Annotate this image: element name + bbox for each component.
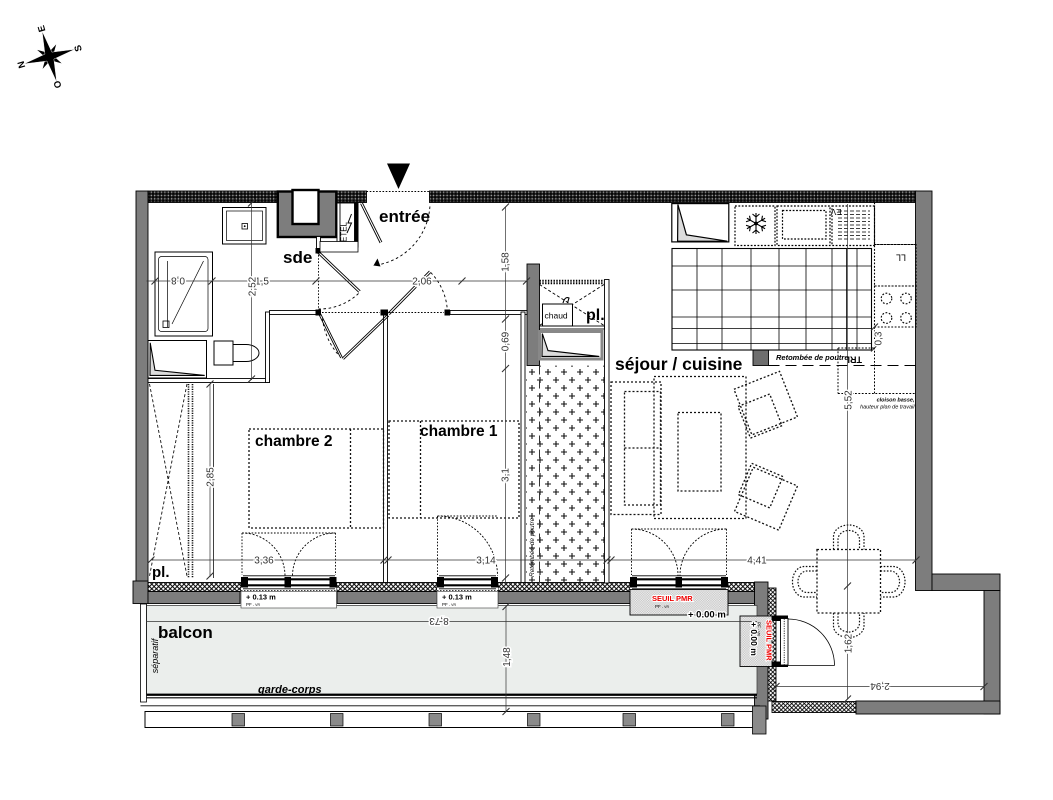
- svg-text:balcon: balcon: [158, 623, 213, 642]
- svg-text:ETEL: ETEL: [340, 221, 349, 242]
- svg-text:PF - VR: PF - VR: [246, 602, 260, 607]
- svg-text:1,62: 1,62: [844, 633, 855, 653]
- svg-text:Retombée de poutre: Retombée de poutre: [529, 517, 536, 577]
- svg-text:0,69: 0,69: [501, 331, 512, 351]
- svg-text:+ 0.13 m: + 0.13 m: [442, 593, 472, 602]
- svg-text:0,3: 0,3: [874, 331, 885, 345]
- svg-text:1,48: 1,48: [502, 647, 513, 667]
- svg-text:pl.: pl.: [152, 564, 170, 581]
- svg-text:2,94: 2,94: [870, 680, 890, 691]
- svg-text:SEUIL PMR: SEUIL PMR: [652, 594, 693, 603]
- svg-text:entrée: entrée: [379, 207, 430, 226]
- svg-text:garde-corps: garde-corps: [257, 684, 322, 696]
- svg-text:1,58: 1,58: [501, 252, 512, 272]
- svg-text:séparatif: séparatif: [150, 637, 160, 673]
- svg-text:PF - VR: PF - VR: [442, 602, 456, 607]
- svg-text:chambre 1: chambre 1: [420, 423, 498, 440]
- svg-text:3,36: 3,36: [254, 556, 274, 567]
- svg-text:séjour / cuisine: séjour / cuisine: [615, 354, 743, 374]
- svg-text:2,06: 2,06: [412, 277, 432, 288]
- svg-text:sde: sde: [283, 248, 312, 267]
- svg-text:8,73: 8,73: [429, 615, 449, 626]
- svg-text:PF - VR: PF - VR: [757, 622, 762, 636]
- svg-text:hauteur plan de travail: hauteur plan de travail: [860, 405, 915, 411]
- svg-text:+ 0.00 m: + 0.00 m: [688, 610, 726, 621]
- svg-text:chaud: chaud: [545, 311, 568, 321]
- svg-text:3,1: 3,1: [501, 468, 512, 482]
- svg-text:+ 0.13 m: + 0.13 m: [246, 593, 276, 602]
- svg-text:chambre 2: chambre 2: [255, 433, 333, 450]
- svg-text:0,8: 0,8: [171, 275, 185, 286]
- svg-text:2,85: 2,85: [206, 467, 217, 487]
- svg-text:3,14: 3,14: [476, 556, 496, 567]
- svg-text:LL: LL: [896, 253, 906, 263]
- svg-text:TRI: TRI: [848, 355, 863, 365]
- svg-text:EV: EV: [830, 207, 841, 216]
- svg-text:SEUIL PMR: SEUIL PMR: [765, 620, 774, 661]
- svg-text:5,52: 5,52: [844, 390, 855, 410]
- svg-text:Retombée de poutre: Retombée de poutre: [776, 353, 849, 362]
- svg-text:pl.: pl.: [586, 307, 605, 324]
- svg-text:4,41: 4,41: [747, 556, 767, 567]
- svg-text:PF - VR: PF - VR: [655, 604, 669, 609]
- svg-text:2,52: 2,52: [248, 276, 259, 296]
- svg-text:cloison basse,: cloison basse,: [877, 398, 915, 404]
